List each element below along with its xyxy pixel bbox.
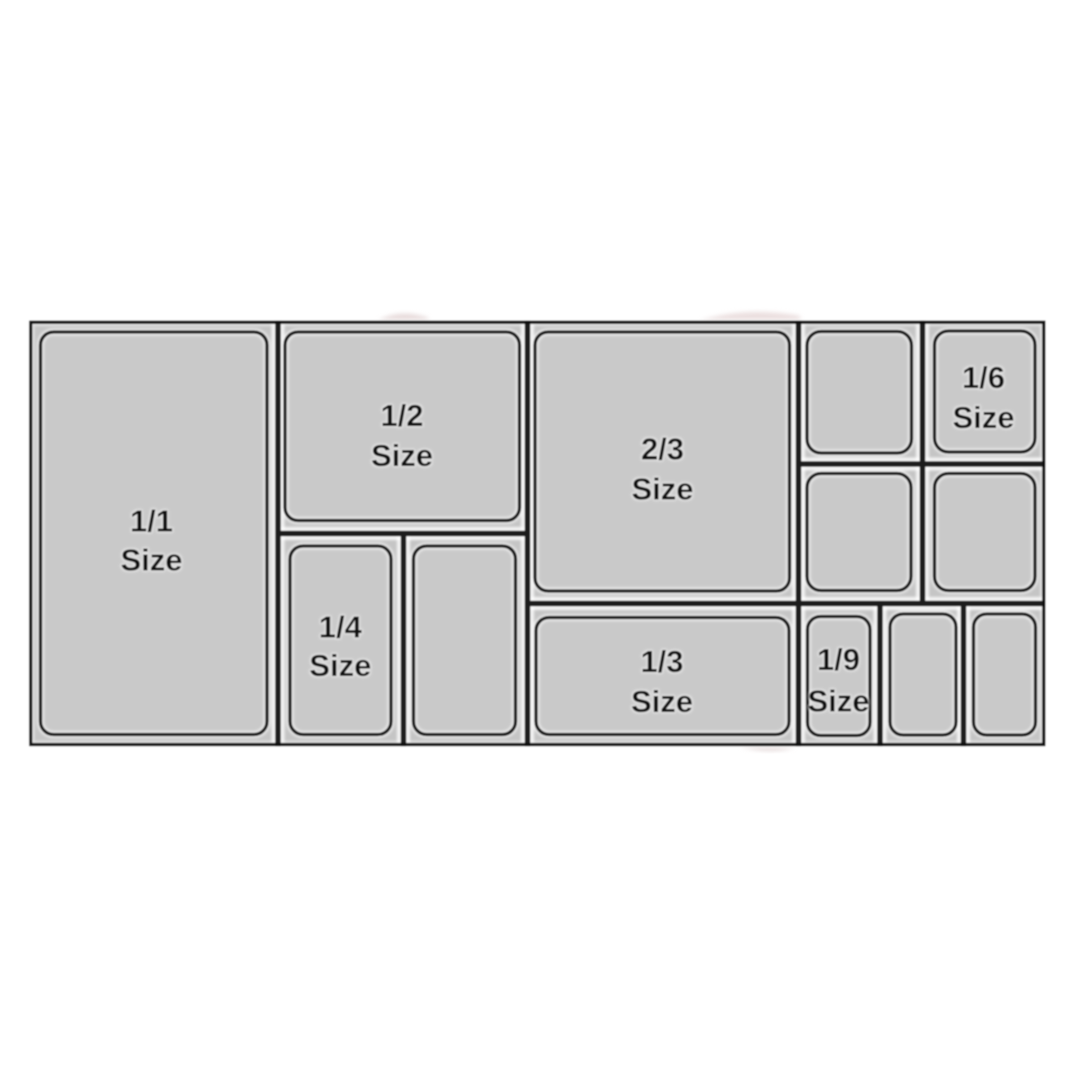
svg-text:Size: Size <box>952 400 1014 435</box>
svg-text:Size: Size <box>371 438 433 473</box>
svg-text:2/3: 2/3 <box>641 431 684 466</box>
svg-text:1/4: 1/4 <box>319 610 363 645</box>
svg-text:Size: Size <box>120 543 182 578</box>
svg-text:Size: Size <box>309 648 371 683</box>
svg-text:1/9: 1/9 <box>817 642 860 677</box>
svg-text:1/3: 1/3 <box>640 644 683 679</box>
svg-text:Size: Size <box>631 472 693 507</box>
svg-text:1/1: 1/1 <box>130 504 173 539</box>
svg-text:Size: Size <box>631 684 693 719</box>
svg-text:1/2: 1/2 <box>380 398 423 433</box>
svg-text:Size: Size <box>807 684 869 719</box>
svg-text:1/6: 1/6 <box>962 360 1005 395</box>
